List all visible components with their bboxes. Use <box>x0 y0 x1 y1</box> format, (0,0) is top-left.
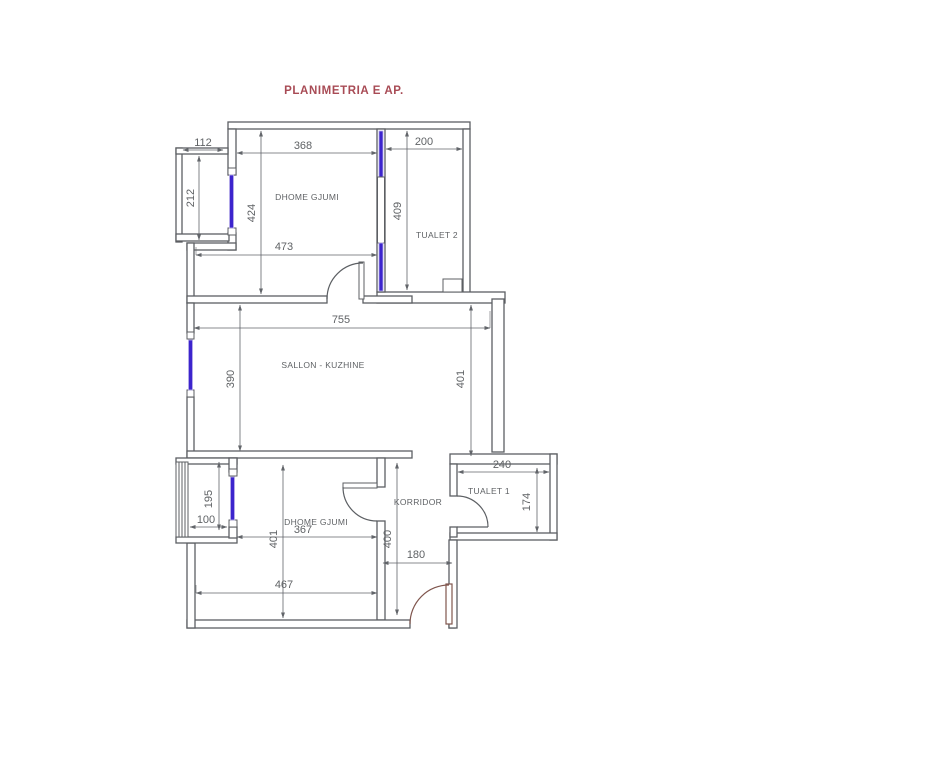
dim-label: 473 <box>275 241 293 253</box>
dim-label: 212 <box>185 189 197 207</box>
room-label-bedroom-top: DHOME GJUMI <box>275 192 339 202</box>
wall-segment <box>187 303 194 333</box>
window-frame <box>228 228 236 235</box>
window-segment <box>379 131 383 177</box>
doors <box>327 262 488 624</box>
dim-label: 240 <box>493 459 511 471</box>
dim-label: 400 <box>382 530 394 548</box>
wall-segment <box>363 296 412 303</box>
dim-label: 112 <box>194 137 212 149</box>
balcony-wall <box>176 148 182 242</box>
wall-segment <box>187 451 412 458</box>
door-leaf <box>359 262 364 299</box>
wall-segment <box>550 454 557 540</box>
wall-segment <box>463 129 470 299</box>
balcony-wall <box>176 537 237 543</box>
wall-segment <box>450 533 557 540</box>
dim-label: 174 <box>521 493 533 511</box>
balcony-wall <box>176 234 229 241</box>
dim-label: 200 <box>415 136 433 148</box>
window-frame <box>187 332 194 339</box>
wall-segment <box>228 122 470 129</box>
wall-segment <box>492 299 504 452</box>
room-label-toilet2: TUALET 2 <box>416 230 458 240</box>
window-frame <box>229 520 237 527</box>
window-frame <box>187 390 194 397</box>
page-title: PLANIMETRIA E AP. <box>284 85 404 97</box>
hatched-window <box>176 462 188 537</box>
dim-label: 401 <box>268 530 280 548</box>
wall-segment <box>187 397 194 458</box>
room-label-salon: SALLON - KUZHINE <box>281 360 364 370</box>
window-segment <box>189 340 193 390</box>
dim-label: 368 <box>294 140 312 152</box>
wall-segment <box>187 296 327 303</box>
window-segment <box>379 243 383 291</box>
wall-segment <box>450 527 457 537</box>
dim-label: 424 <box>246 204 258 222</box>
room-label-corridor: KORRIDOR <box>394 497 442 507</box>
window-frame <box>228 168 236 175</box>
wall-segment <box>450 464 457 496</box>
dim-label: 755 <box>332 314 350 326</box>
shaft-box <box>443 279 462 292</box>
room-label-bedroom-bottom: DHOME GJUMI <box>284 517 348 527</box>
wall-segment <box>187 620 410 628</box>
window-frame <box>229 469 237 476</box>
floor-plan-drawing: 112 368 200 212 424 409 473 755 390 401 … <box>0 0 950 764</box>
door-arc-bedroom-bottom <box>343 487 377 521</box>
window-frame <box>378 177 385 243</box>
wall-segment <box>187 243 194 303</box>
dim-label: 409 <box>392 202 404 220</box>
door-arc-bedroom-top <box>327 263 363 299</box>
dim-label: 195 <box>203 490 215 508</box>
window-segment <box>231 477 235 520</box>
door-leaf <box>343 483 377 488</box>
room-label-toilet1: TUALET 1 <box>468 486 510 496</box>
dim-label: 390 <box>225 370 237 388</box>
dim-label: 100 <box>197 514 215 526</box>
door-arc-entry <box>410 585 449 624</box>
dim-label: 180 <box>407 549 425 561</box>
dim-label: 401 <box>455 370 467 388</box>
entry-door-leaf <box>446 584 452 624</box>
door-arc-toilet1 <box>457 496 488 527</box>
wall-segment <box>377 458 385 487</box>
dim-label: 467 <box>275 579 293 591</box>
floor-plan-page: 112 368 200 212 424 409 473 755 390 401 … <box>0 0 950 764</box>
room-labels: DHOME GJUMI TUALET 2 SALLON - KUZHINE DH… <box>275 192 510 527</box>
wall-segment <box>187 543 195 628</box>
window-segment <box>230 175 234 228</box>
wall-segment <box>229 527 237 538</box>
